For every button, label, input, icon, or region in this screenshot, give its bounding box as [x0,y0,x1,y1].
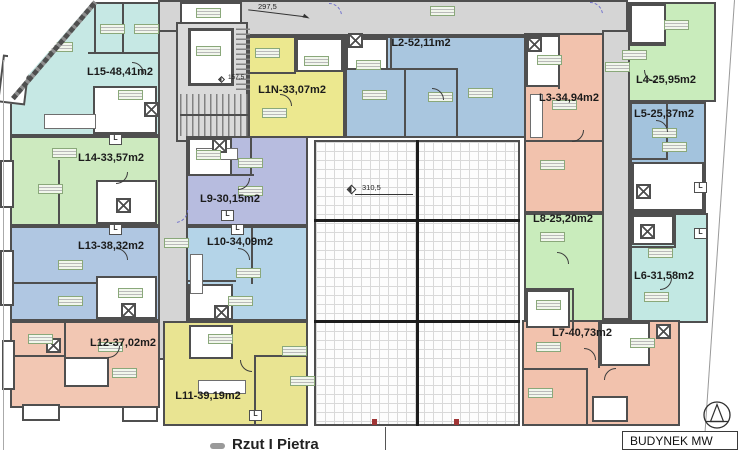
vent-box: L [249,410,262,421]
sub-room [630,4,666,44]
sub-room [592,396,628,422]
wall-segment [456,68,458,138]
room-info-label [664,20,689,30]
roof-level-text: 310,5 [362,183,381,192]
wall-segment [524,140,604,142]
survey-tick [372,419,377,425]
title-marker [210,443,225,449]
wall-segment [64,323,66,357]
wall-segment [524,288,574,290]
north-arrow-icon [702,400,732,435]
apartment-label-l11: L11-39,19m2 [175,390,240,402]
roof-ridge-horizontal-2 [314,320,520,323]
wall-segment [186,174,254,176]
room-info-label [356,60,381,70]
room-info-label [528,388,553,398]
shaft-icon [348,33,363,48]
room-info-label [118,90,143,100]
wall-segment [586,368,588,426]
wall-segment [628,44,666,46]
roof-ridge-horizontal-1 [314,219,520,222]
room-info-label [605,62,630,72]
room-info-label [648,248,673,258]
room-info-label [540,232,565,242]
room-info-label [282,346,307,356]
room-info-label [540,160,565,170]
vent-box: L [694,228,707,239]
room-info-label [164,238,189,248]
room-info-label [58,296,83,306]
apartment-label-l13: L13-38,32m2 [78,240,144,252]
vent-box: L [221,210,234,221]
apartment-label-l10: L10-34,09m2 [207,236,273,248]
vent-box: L [109,134,122,145]
top-dimension-text: 297,5 [258,2,277,11]
room-info-label [228,296,253,306]
wall-segment [248,72,296,74]
kitchen-counter [190,254,203,294]
corridor-right [602,30,630,320]
room-info-label [196,46,221,56]
shaft-icon [144,102,159,117]
room-info-label [52,148,77,158]
wall-segment [674,213,676,248]
sub-room [64,357,109,387]
wall-segment [404,68,406,138]
building-name-label: BUDYNEK MW [630,434,713,448]
shaft-icon [121,303,136,318]
shaft-icon [656,324,671,339]
wall-segment [10,355,66,357]
vent-box: L [694,182,707,193]
room-info-label [644,292,669,302]
kitchen-counter [44,114,96,129]
apartment-label-l4: L4-25,95m2 [636,74,696,86]
room-info-label [28,334,53,344]
sub-room [296,38,343,72]
shaft-icon [214,305,229,320]
room-info-label [662,142,687,152]
wall-segment [88,52,158,54]
wall-segment [522,368,588,370]
room-info-label [468,88,493,98]
apartment-label-l5: L5-25,37m2 [634,108,694,120]
shaft-icon [636,184,651,199]
room-info-label [134,24,159,34]
apartment-label-l7: L7-40,73m2 [552,327,612,339]
room-info-label [100,24,125,34]
room-info-label [236,268,261,278]
wall-segment [294,36,296,74]
room-info-label [238,158,263,168]
room-info-label [196,8,221,18]
apartment-label-l8: L8-25,20m2 [533,213,593,225]
apartment-label-l15: L15-48,41m2 [87,66,153,78]
room-info-label [208,334,233,344]
wall-segment [94,2,96,54]
room-info-label [536,300,561,310]
apartment-label-l9: L9-30,15m2 [200,193,260,205]
room-info-label [622,50,647,60]
wall-segment [572,288,574,330]
room-info-label [362,90,387,100]
wall-segment [10,282,96,284]
room-info-label [290,376,315,386]
room-info-label [196,150,221,160]
shaft-icon [640,224,655,239]
room-info-label [536,342,561,352]
vent-box: L [109,224,122,235]
drawing-frame-line [3,60,4,450]
apartment-label-l2: L2-52,11m2 [391,37,450,49]
room-info-label [112,368,137,378]
room-info-label [537,55,562,65]
page-title: Rzut I Pietra [232,436,319,453]
room-info-label [255,48,280,58]
apartment-label-l3: L3-34,94m2 [539,92,599,104]
apartment-label-l14: L14-33,57m2 [78,152,144,164]
room-info-label [118,288,143,298]
shaft-icon [527,37,542,52]
stair-level-text: 157,5 [228,74,244,81]
floor-plan: LLLLLLL L15-48,41m2 L14-33,57m2 L13-38,3… [0,0,738,450]
shaft-icon [116,198,131,213]
apartment-label-l6: L6-31,58m2 [634,270,694,282]
room-info-label [38,184,63,194]
apartment-label-l12: L12-37,02m2 [90,337,156,349]
room-info-label [58,260,83,270]
vent-box: L [231,224,244,235]
room-info-label [430,6,455,16]
roof-ridge-vertical [416,140,419,426]
apartment-l11 [163,321,308,426]
wall-segment [630,158,668,160]
footer-divider [385,427,386,450]
apartment-label-l1n: L1N-33,07m2 [258,84,326,96]
room-info-label [630,338,655,348]
survey-tick [454,419,459,425]
roof-level-line [355,194,413,195]
room-info-label [262,108,287,118]
balcony [122,406,158,422]
stair-landing-line [180,114,250,116]
wall-segment [250,136,252,176]
room-info-label [304,56,329,66]
balcony [22,404,60,421]
